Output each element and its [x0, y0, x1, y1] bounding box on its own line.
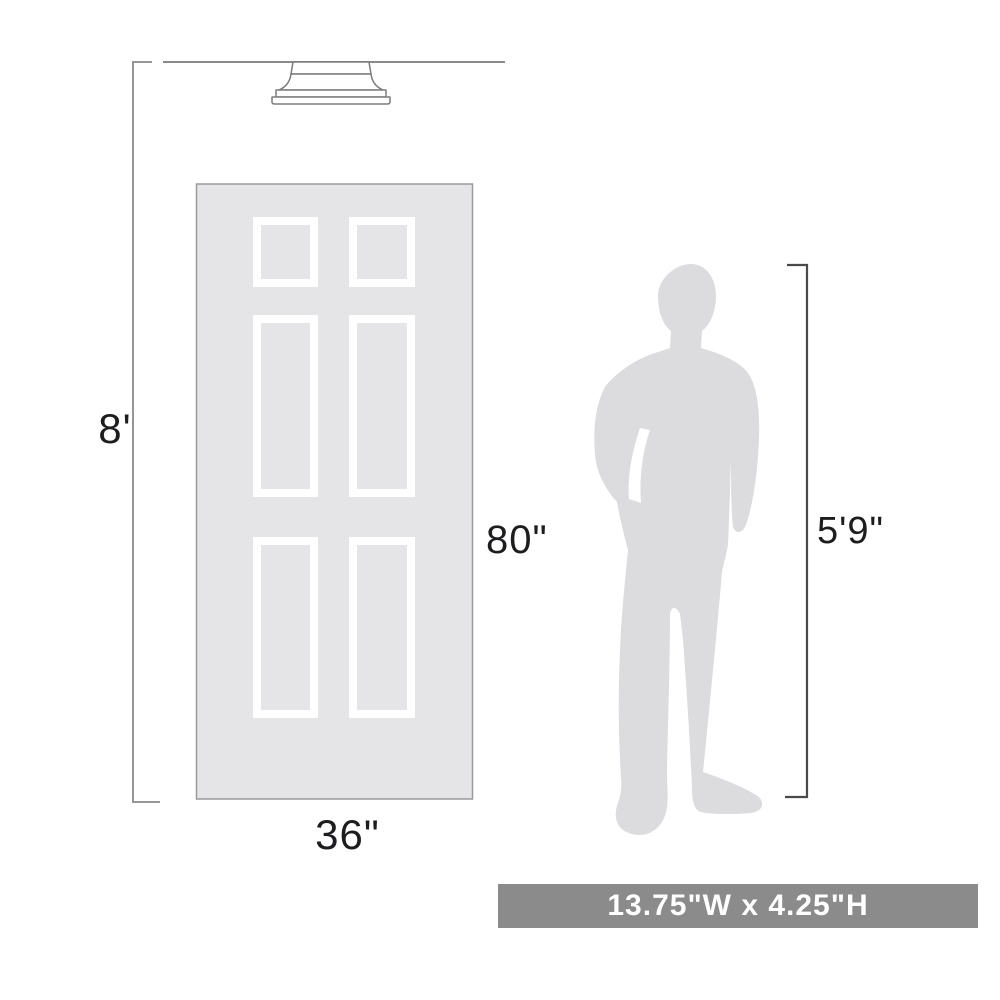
product-dimensions-text: 13.75"W x 4.25"H — [607, 889, 868, 923]
door-width-label: 36" — [305, 814, 390, 856]
flush-mount-light-icon — [272, 62, 390, 104]
six-panel-door-drawing — [197, 184, 473, 799]
product-scale-diagram: 8' 80" 36" 5'9" 13.75"W x 4.25"H — [0, 0, 1000, 1000]
door-height-label: 80" — [486, 520, 548, 560]
person-height-label: 5'9" — [817, 512, 884, 550]
diagram-canvas — [0, 0, 1000, 1000]
person-height-dimension-line — [785, 265, 807, 797]
wall-height-label: 8' — [82, 408, 148, 450]
person-silhouette — [594, 264, 762, 835]
product-dimensions-banner: 13.75"W x 4.25"H — [498, 884, 978, 928]
